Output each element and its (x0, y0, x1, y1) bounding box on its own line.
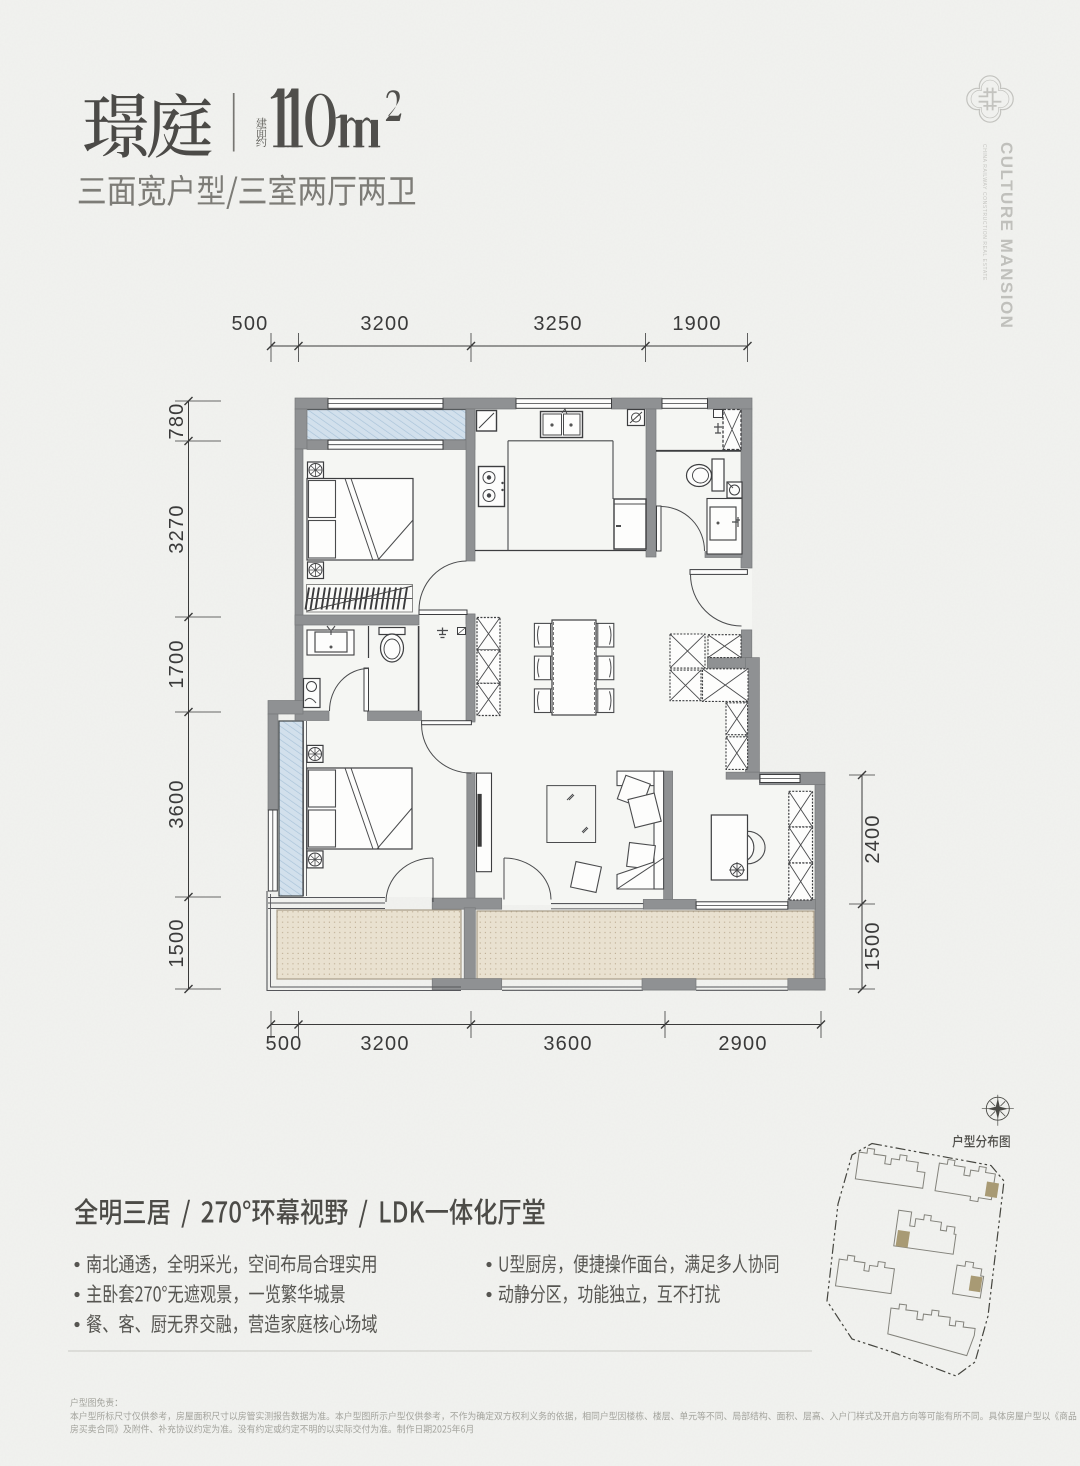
svg-text:3270: 3270 (166, 504, 188, 553)
svg-text:500: 500 (266, 1033, 303, 1055)
svg-text:3600: 3600 (166, 779, 188, 828)
svg-text:2900: 2900 (718, 1033, 767, 1055)
svg-text:3600: 3600 (543, 1033, 592, 1055)
svg-text:3250: 3250 (533, 313, 582, 335)
svg-text:CULTURE MANSION: CULTURE MANSION (997, 142, 1016, 329)
svg-text:3200: 3200 (360, 1033, 409, 1055)
svg-text:3200: 3200 (360, 313, 409, 335)
svg-text:1900: 1900 (672, 313, 721, 335)
svg-text:2400: 2400 (862, 814, 884, 863)
svg-text:780: 780 (166, 403, 188, 440)
svg-text:500: 500 (232, 313, 269, 335)
svg-text:CHINA RAILWAY CONSTRUCTION REA: CHINA RAILWAY CONSTRUCTION REAL ESTATE (981, 144, 987, 281)
svg-text:1700: 1700 (166, 639, 188, 688)
svg-text:1500: 1500 (166, 918, 188, 967)
svg-text:1500: 1500 (862, 921, 884, 970)
